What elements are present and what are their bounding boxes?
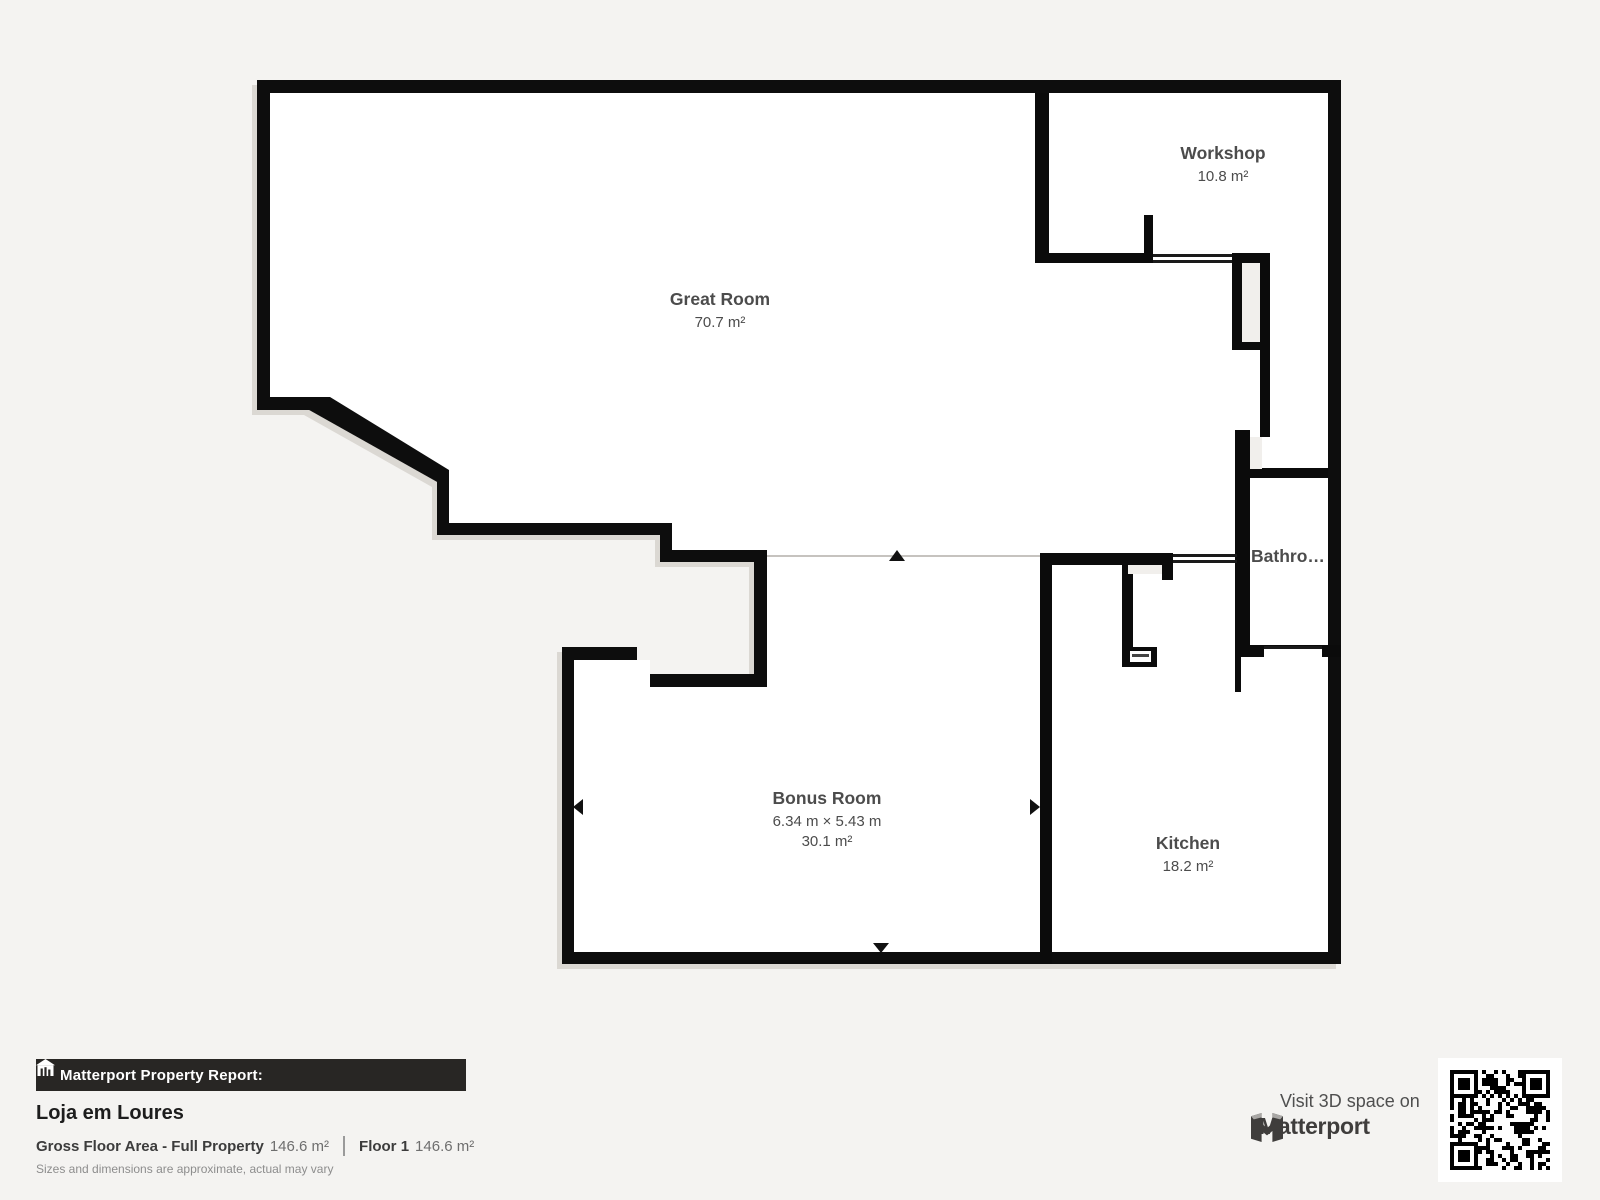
gross-floor-area-value: 146.6 m² (270, 1138, 329, 1155)
workshop-door-line-outer (1153, 254, 1232, 257)
kitchen-door-inset (1128, 565, 1162, 574)
room-dimensions: 6.34 m × 5.43 m (773, 813, 882, 830)
report-banner-label: Matterport Property Report: (60, 1067, 263, 1084)
floor-value: 146.6 m² (415, 1138, 474, 1155)
wall-bathroom-left (1235, 430, 1250, 657)
wall-kitchen-top (1040, 553, 1173, 565)
wall-niche (1250, 437, 1262, 469)
workshop-door-line-inner (1153, 260, 1232, 263)
kitchen-door-line-outer (1173, 554, 1237, 557)
room-name: Bonus Room (773, 788, 882, 808)
report-banner: Matterport Property Report: (36, 1059, 466, 1091)
room-separation-line (767, 555, 1040, 557)
kitchen-door-line-inner (1173, 560, 1237, 563)
wall-bathroom-top (1235, 468, 1328, 478)
qr-modules (1450, 1070, 1550, 1170)
visit-3d-space-text: Visit 3D space on (1280, 1091, 1420, 1112)
room-area: 10.8 m² (1198, 168, 1249, 185)
property-name: Loja em Loures (36, 1102, 184, 1125)
wall-workshop-stub (1144, 215, 1153, 263)
floor-label: Floor 1 (359, 1138, 409, 1155)
floorplan: Great Room 70.7 m² Workshop 10.8 m² Bath… (0, 0, 1600, 1050)
wall-shaft-right (1260, 253, 1270, 437)
room-name: Kitchen (1156, 833, 1220, 853)
room-name: Great Room (670, 289, 770, 309)
building-report-icon (36, 1059, 55, 1076)
disclaimer-text: Sizes and dimensions are approximate, ac… (36, 1162, 333, 1176)
room-name: Workshop (1180, 143, 1265, 163)
qr-code-pattern (1438, 1058, 1562, 1182)
wall-kitchen-stub (1162, 565, 1173, 580)
room-area: 30.1 m² (802, 833, 853, 850)
matterport-m-icon (1251, 1113, 1283, 1142)
wall-workshop-left (1035, 93, 1049, 263)
divider (343, 1136, 345, 1156)
room-area: 70.7 m² (695, 314, 746, 331)
room-label-bathroom: Bathro… (1251, 546, 1325, 566)
bathroom-door-line (1264, 646, 1322, 649)
matterport-logo: Matterport (1251, 1113, 1370, 1140)
wall-below-bathroom-stub (1235, 657, 1241, 692)
room-area: 18.2 m² (1163, 858, 1214, 875)
area-summary: Gross Floor Area - Full Property 146.6 m… (36, 1136, 474, 1156)
wall-kitchen-closet-vertical (1122, 565, 1133, 653)
shaft-interior (1242, 263, 1260, 342)
qr-code (1438, 1058, 1562, 1182)
closet-door-dash (1132, 654, 1149, 657)
wall-workshop-bottom (1035, 253, 1153, 263)
room-name: Bathro… (1251, 546, 1325, 566)
property-report-page: Great Room 70.7 m² Workshop 10.8 m² Bath… (0, 0, 1600, 1200)
gross-floor-area-label: Gross Floor Area - Full Property (36, 1138, 264, 1155)
wall-bonus-kitchen-divider (1040, 553, 1052, 964)
